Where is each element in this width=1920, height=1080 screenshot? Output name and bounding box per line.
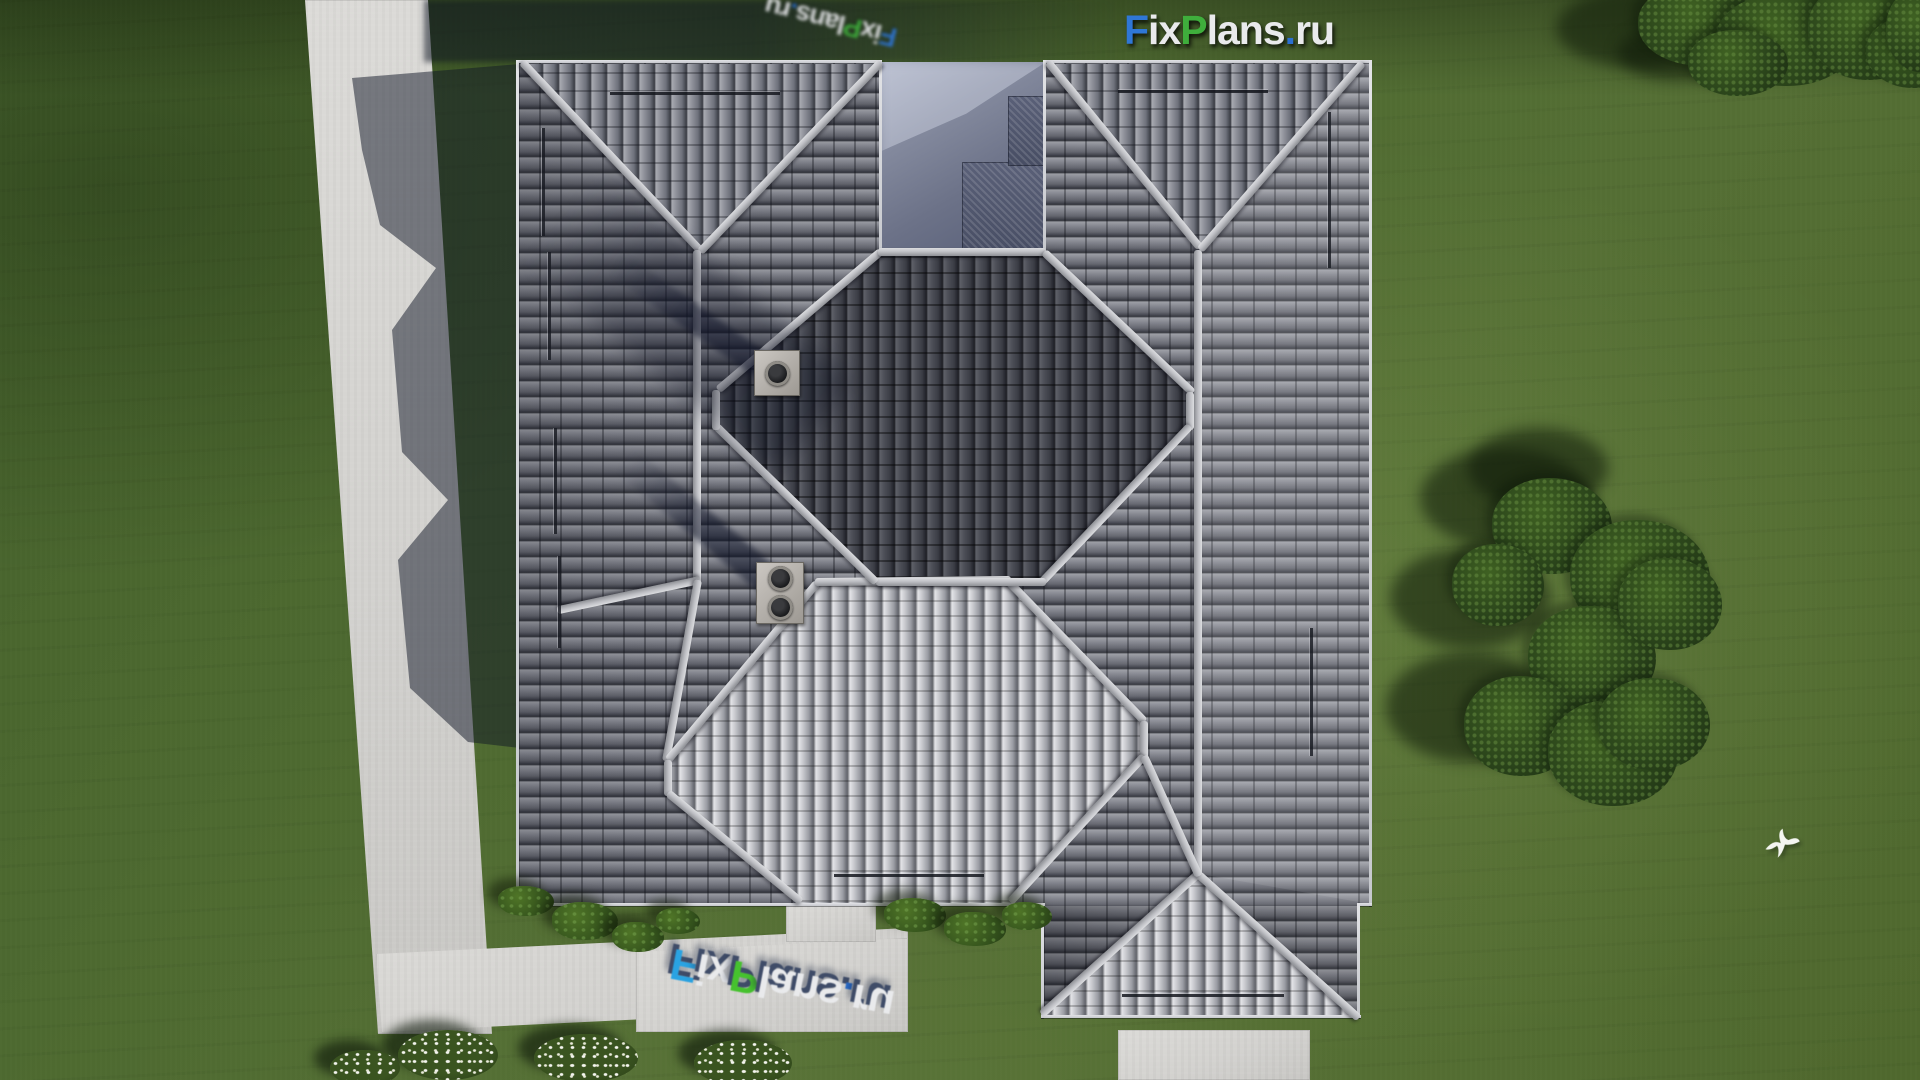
roof-fascia-edge — [879, 60, 882, 256]
roof-ridge-cap — [712, 390, 720, 430]
snow-guard-bar — [1328, 112, 1331, 268]
chimney-flue — [768, 566, 793, 591]
snow-guard-bar — [558, 556, 561, 648]
green-bush — [552, 902, 618, 940]
chimney-double-flue — [756, 562, 804, 624]
roof-fascia-edge — [1357, 903, 1360, 1018]
snow-guard-bar — [554, 428, 557, 534]
aerial-render: FixPlans.ru FixPlans.ru FixPlans.ru — [0, 0, 1920, 1080]
roof-ridge-cap — [1194, 250, 1202, 878]
tree-canopy — [1618, 558, 1722, 650]
flower-bush — [694, 1040, 792, 1080]
chimney-single-flue — [754, 350, 800, 396]
roof-fascia-edge — [1369, 60, 1372, 906]
walkway-vertical — [298, 0, 498, 1034]
stone-paving-panel — [962, 162, 1044, 256]
snow-guard-bar — [834, 874, 984, 877]
watermark-logo-rotated: FixPlans.ru — [724, 0, 937, 67]
roof-fascia-edge — [1041, 1015, 1361, 1018]
tree-canopy — [1598, 678, 1710, 770]
roof-ridge-cap — [693, 250, 701, 584]
roof-ridge-cap — [878, 248, 1046, 256]
roof-fascia-edge — [516, 60, 882, 63]
bird — [1760, 825, 1804, 864]
green-bush — [944, 912, 1006, 946]
courtyard-patio — [880, 62, 1046, 256]
tree-canopy — [1452, 544, 1544, 626]
logo-letter: P — [1180, 7, 1206, 53]
green-bush — [498, 886, 554, 916]
logo-letter: lans — [793, 0, 848, 38]
green-bush — [656, 908, 700, 934]
chimney-flue — [768, 595, 793, 620]
roof-ridge-cap — [876, 578, 1046, 586]
porch-roof-sides — [1043, 906, 1360, 1016]
roof-fascia-edge — [516, 60, 519, 906]
logo-letter: lans — [1207, 7, 1285, 53]
stone-paving-panel — [1008, 96, 1044, 166]
terrace-pad — [1118, 1030, 1310, 1080]
roof-fascia-edge — [1043, 60, 1046, 256]
roof-fascia-edge — [1044, 60, 1372, 63]
watermark-logo: FixPlans.ru — [1124, 10, 1334, 51]
flower-bush — [398, 1030, 498, 1080]
logo-letter: ix — [1148, 7, 1180, 53]
logo-letter: F — [1124, 7, 1148, 53]
green-bush — [884, 898, 946, 932]
snow-guard-bar — [548, 252, 551, 360]
snow-guard-bar — [1310, 628, 1313, 756]
snow-guard-bar — [542, 128, 545, 236]
snow-guard-bar — [1122, 994, 1284, 997]
green-bush — [1002, 902, 1052, 930]
tree-canopy — [1688, 30, 1788, 96]
logo-letter: . — [1285, 7, 1295, 53]
chimney-flue — [765, 361, 790, 386]
logo-letter: ru — [848, 976, 898, 1027]
snow-guard-bar — [1118, 90, 1268, 93]
snow-guard-bar — [610, 92, 780, 95]
flower-bush — [534, 1034, 638, 1080]
logo-letter: ru — [1295, 7, 1334, 53]
entry-step-slab — [786, 902, 876, 942]
flower-bush — [330, 1050, 400, 1080]
